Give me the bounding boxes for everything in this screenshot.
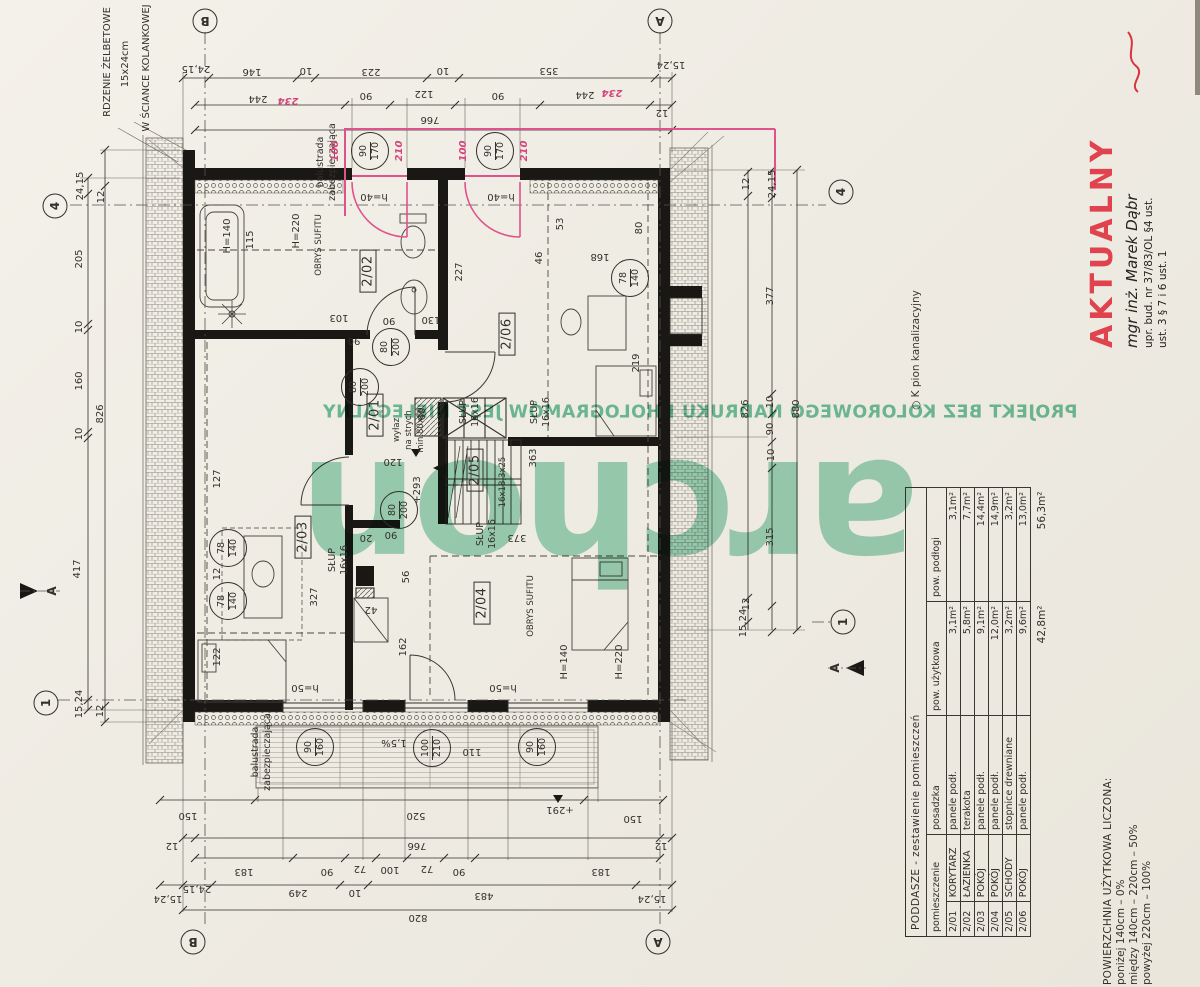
pink-annotation: 210 [395,141,405,162]
dim-label: 10 [437,65,450,75]
dim-label: 150 [623,813,642,823]
dim-label: 53 [556,218,566,231]
dim-label: 120 [383,456,402,466]
s ewer-stack-note: ○ K pion kanalizacyjny [911,290,922,410]
dim-label: 12 [742,178,752,191]
dim-label: H=140 [560,645,570,680]
door-size-badge: 80200 [372,328,410,366]
dim-label: 146 [242,66,261,76]
plant-icon [218,300,246,328]
dim-label: 122 [414,88,433,98]
dim-label: 219 [632,353,642,372]
dim-label: 90 [766,423,776,436]
table-title: PODDASZE - zestawienie pomieszczeń [905,487,926,937]
dim-label: 24,15 [76,172,86,201]
dim-label: 130 [421,314,440,324]
col-header-floor: posadzka [927,716,947,835]
aktualny-stamp: AKTUALNY mgr inż. Marek Dąbr upr. bud. n… [1085,8,1169,348]
dim-label: 12 [97,191,107,204]
dim-label: 122 [213,647,223,666]
dim-label: 15,24 [657,59,686,69]
dim-label: 10 [75,321,85,334]
ceiling-outline-note: OBRYS SUFITU [527,575,536,637]
table-row: 2/05SCHODYstopnice drewniane3,2m²3,2m² [1003,488,1017,937]
dim-label: 100 [380,864,399,874]
blueprint-sheet: archon PROJEKT BEZ KOLOROWEGO NADRUKU I … [0,0,1200,987]
section-a-left: A [46,586,58,595]
room-label-2-02: 2/02 [360,249,377,292]
attic-hatch-note: na strych [405,410,414,450]
dim-label: 12 [213,568,223,581]
dim-label: 56 [402,571,412,584]
dim-label: 766 [420,114,439,124]
dim-label: 483 [474,890,493,900]
dim-label: 227 [455,262,465,281]
roof-window-badge: 78140 [209,529,247,567]
balustrade-note-top: balustradazabezpieczająca [315,123,339,201]
pink-annotation: 234 [278,95,299,105]
margin-note-rdzenie: RDZENIE ŻELBETOWE [103,7,113,117]
table-row: 2/04POKÓJpanele podł.12,0m²14,9m² [989,488,1003,937]
dim-label: 373 [507,532,526,542]
dim-label: 223 [361,66,380,76]
post-note: SŁUP16x16 [327,545,351,575]
dim-label: 15,24 [739,609,749,638]
axis-1-left: 1 [40,699,52,707]
dim-label: 327 [310,587,320,606]
area-calculation-notes: POWIERZCHNIA UŻYTKOWA LICZONA: poniżej 1… [1102,685,1153,985]
dim-label: 880 [792,399,802,418]
margin-note-size: 15x24cm [121,41,131,88]
table-total-row: 42,8m²56,3m² [1031,488,1050,937]
dim-label: 183 [234,866,253,876]
window-size-badge: 90160 [296,728,334,766]
dim-label: 80 [635,222,645,235]
dim-label: 90 [453,866,466,876]
dim-label: 168 [590,251,609,261]
dim-label: 24,15 [182,63,211,73]
dim-label: 90 [383,315,396,325]
dim-label: 20 [360,532,373,542]
pink-annotation: 100 [331,141,341,162]
attic-hatch-note: wyłaz [393,418,402,442]
axis-4-right: 4 [835,188,847,196]
dim-label: 520 [406,810,425,820]
dim-label: 10 [767,449,777,462]
col-header-room: pomieszczenie [927,835,947,937]
col-header-use-area: pow. użytkowa [927,602,947,716]
dim-label: 15,24 [154,893,183,903]
dim-label: 90 [321,866,334,876]
table-row: 2/01KORYTARZpanele podł.3,1m²3,1m² [947,488,961,937]
dim-label: 90 [360,90,373,100]
dim-label: 12 [656,107,669,117]
dim-label: 183 [591,866,610,876]
dim-label: h=50 [291,682,318,692]
roof-window-badge: 78140 [209,582,247,620]
stamp-license: upr. bud. nr 37/83/OL §4 ust. [1143,8,1155,348]
dim-label: 115 [246,230,256,249]
axis-b-bottom: B [188,936,197,948]
total-use-area: 42,8m² [1031,602,1050,716]
post-note: SŁUP16x16 [475,519,499,549]
dim-label: H=140 [223,219,233,254]
notes-title: POWIERZCHNIA UŻYTKOWA LICZONA: [1102,685,1114,985]
dim-label: 160 [75,371,85,390]
dim-label: 90 [492,90,505,100]
pink-annotation: 100 [459,141,469,162]
stair-step-note: 16x18,3x25 [499,457,508,508]
notes-line: między 140cm – 220cm – 50% [1128,685,1140,985]
axis-4-left: 4 [49,202,61,210]
table-row: 2/06POKÓJpanele podł.9,6m²13,0m² [1017,488,1031,937]
dim-label: 766 [407,840,426,850]
dim-label: 15,24 [638,893,667,903]
room-label-2-03: 2/03 [295,515,312,558]
dim-label: 12 [96,705,106,718]
dim-label: 24,15 [183,883,212,893]
dim-label: 244 [248,93,267,103]
pink-annotation: 210 [520,141,530,162]
balustrade-note-bottom: balustradazabezpieczająca [250,713,274,791]
dim-label: 10 [300,65,313,75]
dim-label: 820 [408,912,427,922]
room-label-2-05: 2/05 [467,448,484,491]
window-size-badge: 100210 [413,729,451,767]
notes-line: powyżej 220cm – 100% [1141,685,1153,985]
dim-label: 46 [535,252,545,265]
window-size-badge: 90170 [351,132,389,170]
dim-label: 150 [178,810,197,820]
dim-label: 10 [766,396,776,409]
dim-label: 127 [213,469,223,488]
table-row: 2/03POKÓJpanele podł.9,1m²14,4m² [975,488,989,937]
dim-label: 205 [75,249,85,268]
room-label-2-06: 2/06 [499,312,516,355]
dim-label: 15,24 [75,690,85,719]
post-note: SŁUP16x16 [458,397,482,427]
dim-label: 103 [329,312,348,322]
col-header-floor-area: pow. podłogi [927,488,947,602]
table-header-row: pomieszczenie posadzka pow. użytkowa pow… [927,488,947,937]
dim-label: 110 [462,746,481,756]
slope-note: 1,5% [381,737,406,747]
dim-label: 42 [365,604,378,614]
window-size-badge: 90170 [476,132,514,170]
dim-label: 90 [348,335,361,345]
dim-label: 826 [741,399,751,418]
dim-label: 10 [75,428,85,441]
dim-label: 12 [655,840,668,850]
ceiling-outline-note: OBRYS SUFITU [315,214,324,276]
roof-window-badge: 78140 [611,259,649,297]
dim-label: 249 [288,887,307,897]
axis-a-bottom: A [653,936,662,948]
windows [283,700,588,712]
dim-label: h=50 [489,682,516,692]
dim-label: 60 [418,408,428,421]
dim-label: H=220 [615,645,625,680]
stamp-title: AKTUALNY [1085,8,1120,348]
dim-label: H=220 [292,214,302,249]
level-label: +293 [413,476,423,503]
dim-label: 377 [766,286,776,305]
dim-label: 363 [529,448,539,467]
dim-label: 72 [354,863,367,873]
room-schedule-table: PODDASZE - zestawienie pomieszczeń pomie… [905,487,1049,937]
section-a-right: A [829,663,841,672]
axis-a-top: A [655,15,664,27]
notes-line: poniżej 140cm – 0% [1115,685,1127,985]
door-size-badge: 80200 [341,368,379,406]
dim-label: +291 [546,804,573,814]
dim-label: 24,15 [768,170,778,199]
axis-1-right: 1 [837,618,849,626]
margin-note-wall: W ŚCIANCE KOLANKOWEJ [142,4,152,131]
post-note: SŁUP16x16 [529,397,553,427]
dim-label: 826 [96,404,106,423]
dim-label: h=40 [360,191,387,201]
dim-label: 90 [385,529,398,539]
dim-label: 244 [575,89,594,99]
room-label-2-04: 2/04 [474,581,491,624]
dim-label: 353 [539,65,558,75]
dim-label: 10 [349,887,362,897]
stamp-license: ust. 3 § 7 i 6 ust. 1 [1157,8,1169,348]
dim-label: 162 [399,637,409,656]
pink-annotation: 234 [602,87,623,97]
stamp-engineer: mgr inż. Marek Dąbr [1123,8,1141,348]
total-floor-area: 56,3m² [1031,488,1050,602]
dim-label: 72 [421,863,434,873]
watermark-warning-text: PROJEKT BEZ KOLOROWEGO NADRUKU I HOLOGRA… [322,404,1077,422]
table-row: 2/02ŁAZIENKAterakota5,8m²7,7m² [961,488,975,937]
dim-label: 315 [766,527,776,546]
dim-label: h=40 [487,191,514,201]
dim-label: 417 [73,559,83,578]
axis-b-top: B [200,15,209,27]
window-size-badge: 90160 [518,728,556,766]
dim-label: 12 [166,840,179,850]
